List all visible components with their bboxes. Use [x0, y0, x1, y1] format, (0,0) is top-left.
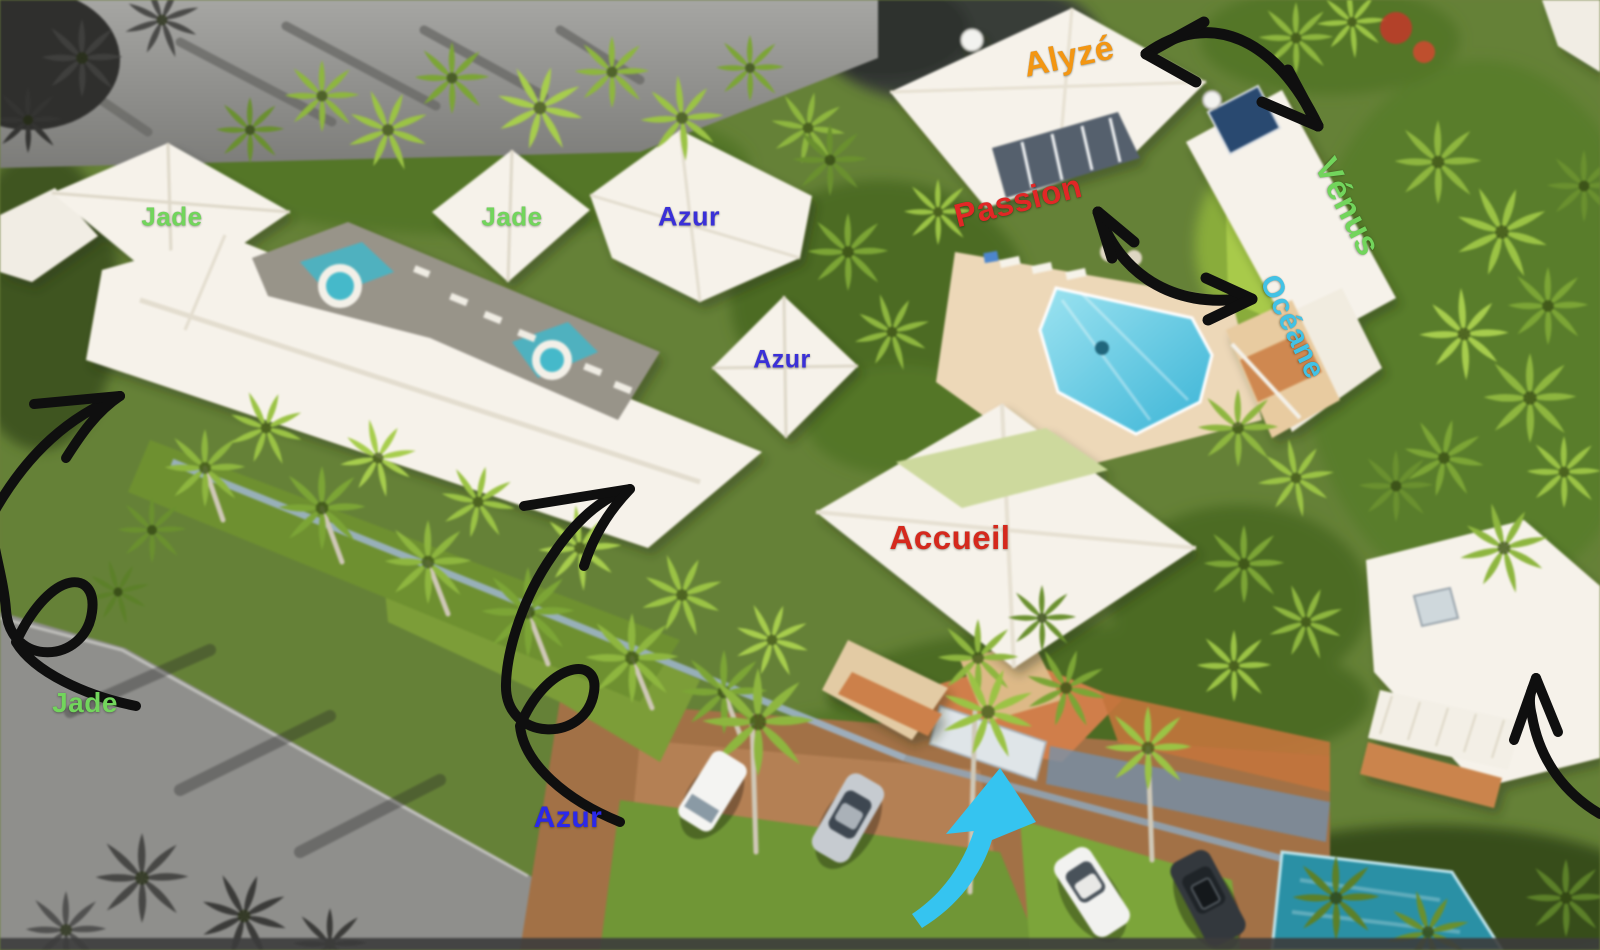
umbrella-1 — [1100, 242, 1120, 262]
umbrella-2 — [1126, 250, 1142, 266]
aerial-photo-annotated: JadeJadeAzurAzurAlyzéPassionVénusOcéaneA… — [0, 0, 1600, 950]
satellite-dish-2 — [1203, 91, 1221, 109]
bottom-letterbox — [0, 938, 1600, 950]
skylight — [1414, 588, 1458, 626]
aerial-photo — [0, 0, 1600, 950]
satellite-dish — [961, 29, 983, 51]
